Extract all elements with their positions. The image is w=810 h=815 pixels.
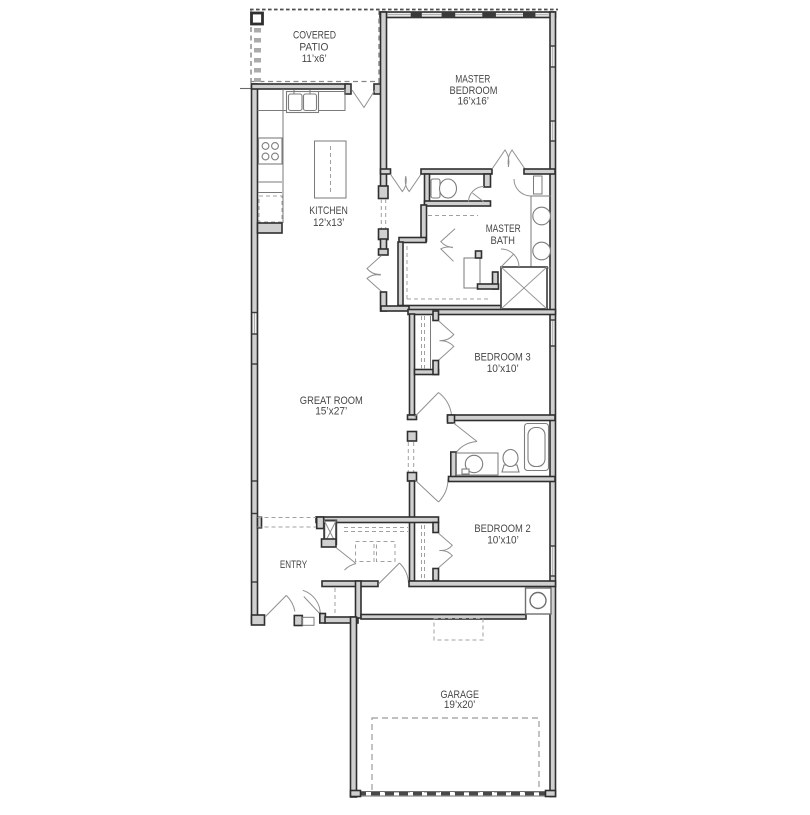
svg-text:BEDROOM 2: BEDROOM 2: [474, 523, 530, 535]
svg-text:15’x27’: 15’x27’: [315, 405, 347, 417]
svg-text:19’x20’: 19’x20’: [444, 699, 476, 711]
svg-text:10’x10’: 10’x10’: [487, 534, 519, 546]
svg-text:MASTER: MASTER: [486, 223, 521, 235]
svg-text:BEDROOM 3: BEDROOM 3: [474, 352, 530, 364]
svg-text:12’x13’: 12’x13’: [313, 217, 345, 229]
svg-text:PATIO: PATIO: [299, 41, 328, 53]
svg-text:16’x16’: 16’x16’: [458, 96, 490, 108]
svg-text:11’x6’: 11’x6’: [302, 53, 327, 65]
svg-text:MASTER: MASTER: [455, 73, 490, 85]
svg-text:10’x10’: 10’x10’: [487, 363, 519, 375]
svg-text:BATH: BATH: [491, 235, 516, 247]
svg-text:KITCHEN: KITCHEN: [309, 205, 348, 217]
svg-text:ENTRY: ENTRY: [280, 559, 308, 571]
svg-text:COVERED: COVERED: [293, 30, 336, 42]
